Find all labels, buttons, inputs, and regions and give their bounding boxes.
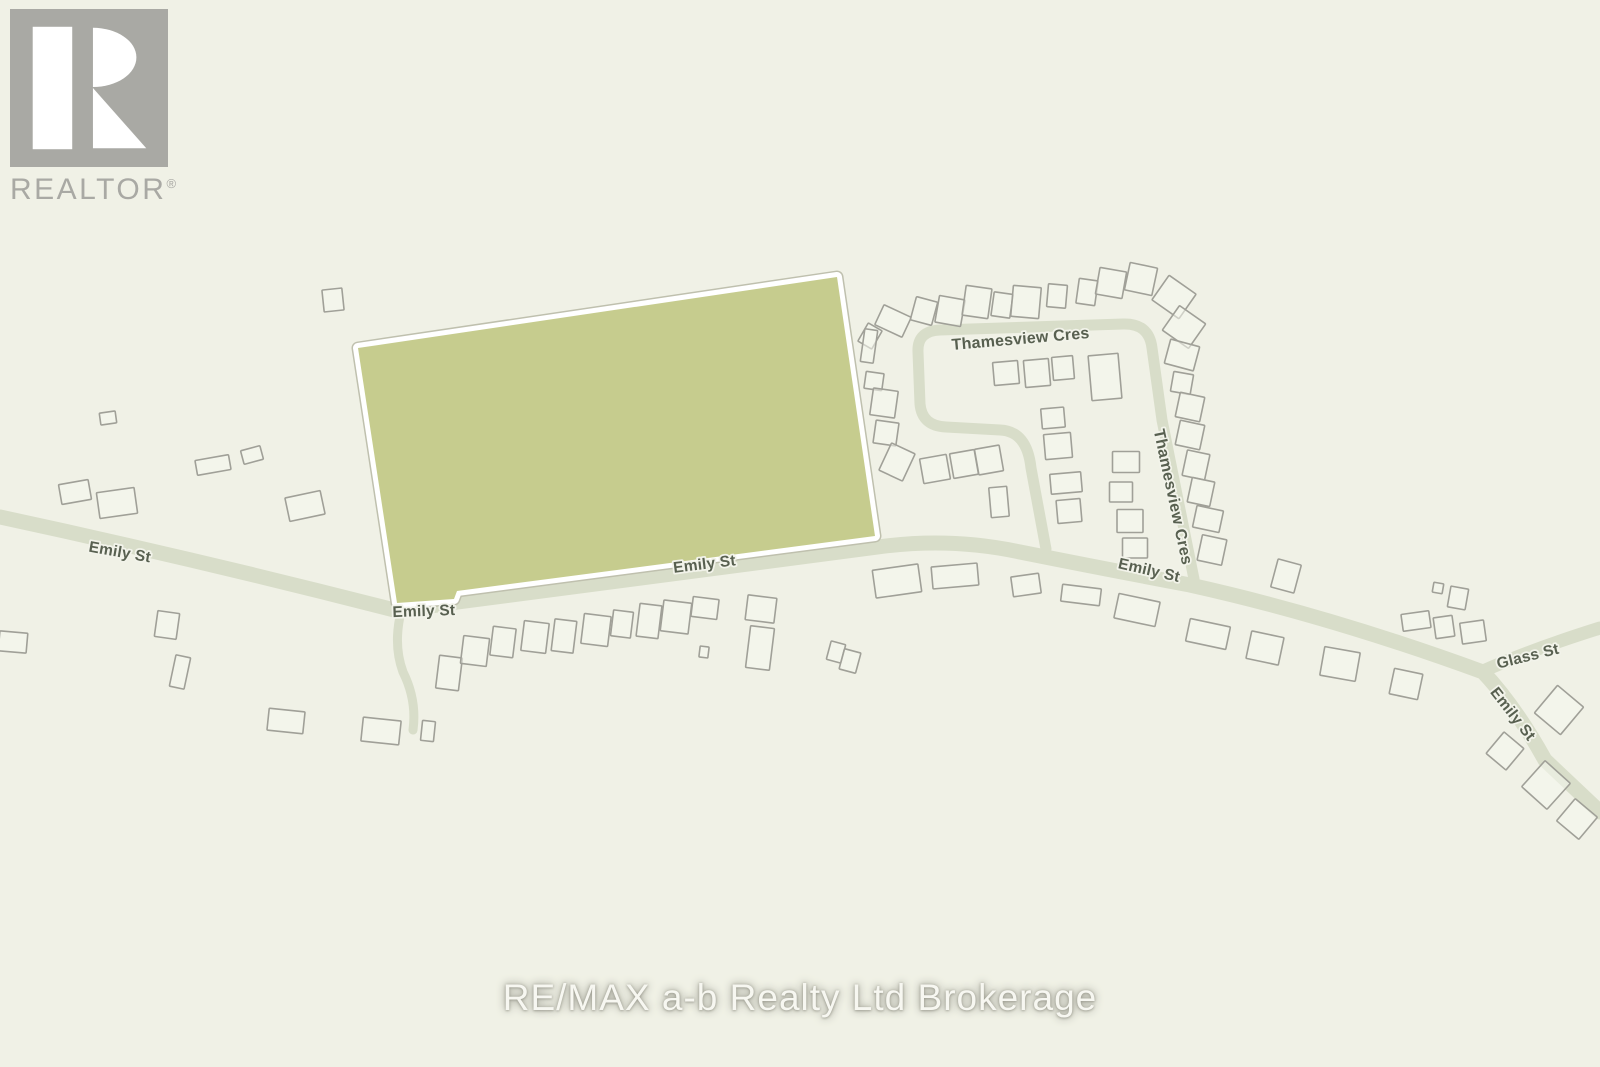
building-footprint bbox=[1117, 510, 1143, 533]
building-footprint bbox=[1043, 432, 1072, 459]
building-footprint bbox=[989, 486, 1010, 517]
building-footprint bbox=[1432, 582, 1444, 594]
building-footprint bbox=[660, 600, 692, 634]
registered-trademark-icon: ® bbox=[166, 176, 176, 191]
building-footprint bbox=[950, 450, 979, 479]
building-footprint bbox=[1047, 284, 1068, 309]
building-footprint bbox=[872, 564, 921, 598]
building-footprint bbox=[96, 487, 137, 518]
building-footprint bbox=[991, 292, 1013, 318]
building-footprint bbox=[1193, 505, 1224, 532]
building-footprint bbox=[1110, 482, 1133, 502]
building-footprint bbox=[935, 295, 965, 326]
building-footprint bbox=[1023, 358, 1050, 387]
building-footprint bbox=[267, 708, 305, 734]
building-footprint bbox=[420, 720, 435, 741]
building-footprint bbox=[1170, 371, 1193, 394]
building-footprint bbox=[58, 480, 91, 505]
building-footprint bbox=[490, 626, 516, 658]
building-footprint bbox=[1123, 538, 1148, 558]
building-footprint bbox=[636, 603, 662, 638]
building-footprint bbox=[1187, 477, 1215, 506]
building-footprint bbox=[1113, 452, 1140, 473]
building-footprint bbox=[1182, 450, 1210, 480]
building-footprint bbox=[1175, 392, 1205, 422]
building-footprint bbox=[1433, 615, 1455, 638]
building-footprint bbox=[1052, 356, 1075, 381]
building-footprint bbox=[1401, 611, 1431, 632]
building-footprint bbox=[870, 388, 899, 418]
building-footprint bbox=[460, 636, 489, 667]
brokerage-watermark: RE/MAX a-b Realty Ltd Brokerage bbox=[0, 977, 1600, 1019]
building-footprint bbox=[436, 655, 463, 691]
building-footprint bbox=[745, 595, 777, 623]
building-footprint bbox=[521, 621, 549, 654]
building-footprint bbox=[1061, 584, 1102, 606]
building-footprint bbox=[1076, 278, 1098, 305]
building-footprint bbox=[1011, 573, 1042, 597]
building-footprint bbox=[699, 646, 709, 658]
building-footprint bbox=[1124, 262, 1157, 295]
building-footprint bbox=[581, 613, 611, 646]
building-footprint bbox=[551, 619, 577, 653]
map-canvas[interactable]: Emily StEmily StEmily StEmily StGlass St… bbox=[0, 0, 1600, 1067]
building-footprint bbox=[361, 717, 401, 745]
building-footprint bbox=[610, 610, 633, 638]
street-label-emily-st: Emily St bbox=[392, 602, 455, 621]
building-footprint bbox=[1050, 472, 1083, 495]
building-footprint bbox=[1246, 631, 1284, 665]
building-footprint bbox=[0, 631, 28, 653]
building-footprint bbox=[154, 611, 179, 640]
building-footprint bbox=[1320, 647, 1360, 682]
building-footprint bbox=[1041, 407, 1066, 429]
building-footprint bbox=[1056, 498, 1082, 523]
building-footprint bbox=[746, 626, 775, 671]
building-footprint bbox=[1095, 267, 1126, 298]
building-footprint bbox=[1447, 586, 1468, 610]
building-footprint bbox=[920, 454, 951, 483]
realtor-logo-mark-icon bbox=[10, 9, 168, 167]
listing-map: Emily StEmily StEmily StEmily StGlass St… bbox=[0, 0, 1600, 1067]
building-footprint bbox=[691, 596, 719, 619]
building-footprint bbox=[962, 285, 992, 318]
building-footprint bbox=[873, 420, 899, 446]
building-footprint bbox=[1175, 420, 1205, 450]
building-footprint bbox=[1389, 668, 1423, 699]
realtor-logo-text: REALTOR® bbox=[10, 175, 210, 205]
realtor-logo: REALTOR® bbox=[10, 9, 210, 205]
realtor-r-icon bbox=[10, 9, 168, 167]
building-footprint bbox=[974, 445, 1003, 475]
building-footprint bbox=[931, 563, 979, 589]
building-footprint bbox=[993, 360, 1020, 385]
building-footprint bbox=[1460, 620, 1487, 644]
building-footprint bbox=[1088, 353, 1122, 400]
building-footprint bbox=[1011, 285, 1042, 318]
building-footprint bbox=[99, 411, 117, 425]
building-footprint bbox=[322, 288, 344, 312]
building-footprint bbox=[1197, 535, 1227, 566]
